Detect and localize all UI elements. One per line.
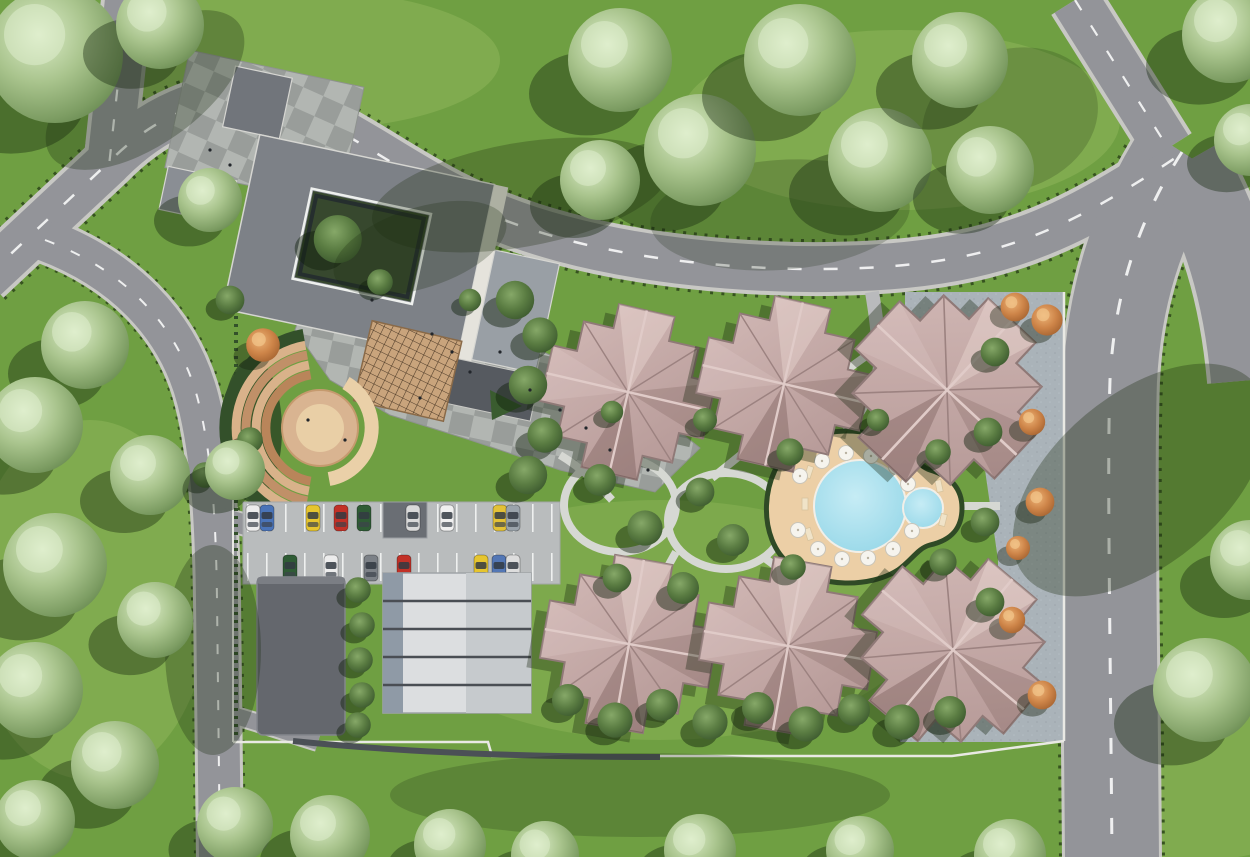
umbrella [791,523,806,538]
parked-car [246,505,260,531]
site-plan-render [0,0,1250,857]
parked-car [306,505,320,531]
parked-car [506,505,520,531]
umbrella [835,552,850,567]
umbrella [815,454,830,469]
parked-car [260,505,274,531]
parked-car [364,555,378,581]
parked-car [493,505,507,531]
service-area [257,573,531,735]
parking-lot [243,502,560,584]
parked-car [334,505,348,531]
umbrella [886,542,901,557]
carport-canopy [383,573,531,713]
parked-car [406,505,420,531]
aerial-scene [0,0,1250,857]
parked-car [440,505,454,531]
service-building-roof [257,577,345,735]
entrance-pavilion-roof [223,66,293,139]
umbrella [811,542,826,557]
umbrella [861,551,876,566]
parked-car [357,505,371,531]
umbrella [793,469,808,484]
umbrella [905,524,920,539]
kids-pool [903,488,943,528]
